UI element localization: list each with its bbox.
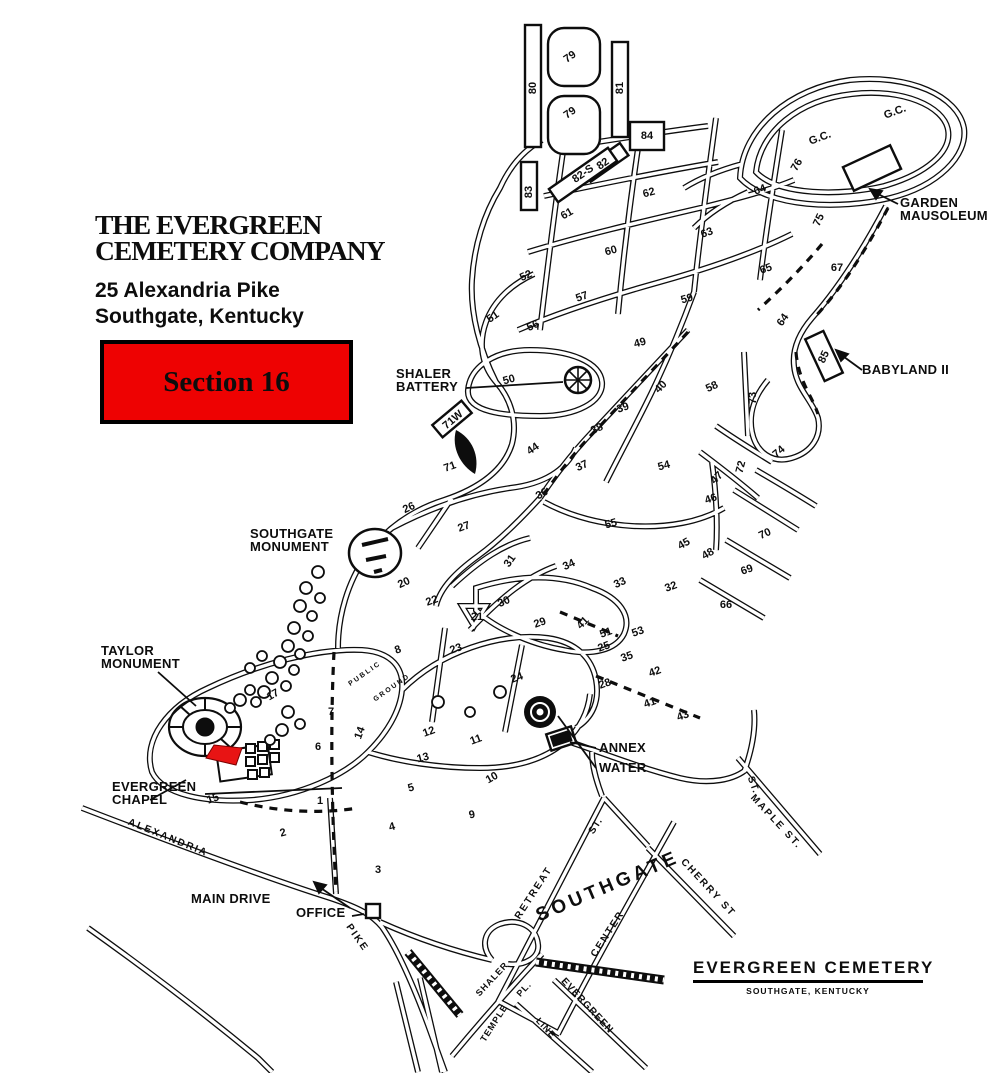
map-subtitle: SOUTHGATE, KENTUCKY — [693, 986, 923, 996]
map-header: THE EVERGREEN CEMETERY COMPANY 25 Alexan… — [95, 212, 395, 330]
battery-teardrop — [455, 430, 477, 474]
office-building — [366, 904, 380, 918]
highlighted-section-16[interactable] — [206, 745, 242, 765]
address-line1: 25 Alexandria Pike — [95, 278, 395, 304]
cemetery-map-drawing — [0, 0, 1000, 1073]
address-line2: Southgate, Kentucky — [95, 304, 395, 330]
section-callout: Section 16 — [100, 340, 353, 424]
company-name-line1: THE EVERGREEN — [95, 212, 401, 238]
plot-outlines — [432, 25, 901, 437]
annex-building — [546, 726, 576, 750]
map-title: EVERGREEN CEMETERY — [693, 958, 923, 983]
water-feature — [524, 696, 556, 728]
trees-cluster — [225, 566, 506, 745]
southgate-monument-circle — [349, 529, 401, 577]
map-title-block: EVERGREEN CEMETERY SOUTHGATE, KENTUCKY — [693, 958, 923, 996]
section-callout-label: Section 16 — [163, 366, 289, 399]
company-name-line2: CEMETERY COMPANY — [95, 238, 401, 264]
shaler-battery-wheel — [466, 367, 591, 393]
cemetery-map-page: 80797981848282-S8362G.C.G.C.766461636075… — [0, 0, 1000, 1073]
